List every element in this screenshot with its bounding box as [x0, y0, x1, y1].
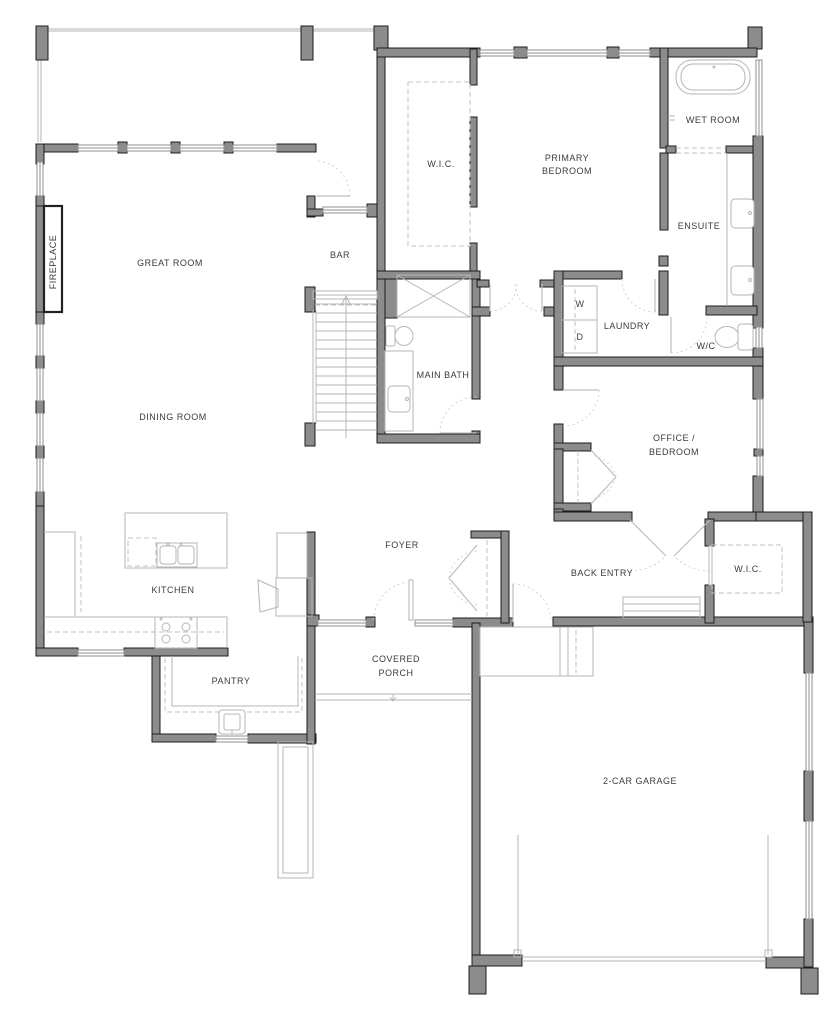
room-label-primary-bedroom-2: BEDROOM [542, 166, 592, 176]
room-label-laundry: LAUNDRY [604, 321, 650, 331]
room-label-wc: W/C [697, 341, 716, 351]
window [216, 736, 248, 742]
window [233, 145, 277, 151]
window [756, 327, 762, 348]
window [37, 162, 43, 196]
door-main-bath [440, 397, 476, 433]
room-label-primary-bedroom-1: PRIMARY [545, 153, 589, 163]
window [415, 620, 453, 626]
window [757, 456, 763, 476]
doors [315, 161, 710, 622]
main-bath-vanity [385, 351, 413, 431]
shower-head-icon [668, 116, 675, 120]
room-label-porch-1: COVERED [372, 654, 420, 664]
room-label-kitchen: KITCHEN [151, 585, 194, 595]
window [180, 145, 224, 151]
room-label-office-1: OFFICE / [653, 433, 695, 443]
refrigerator-icon [258, 533, 312, 616]
room-label-back-wic: W.I.C. [734, 564, 762, 574]
room-label-pantry: PANTRY [212, 676, 251, 686]
sink-icon [731, 199, 754, 228]
window [806, 821, 812, 919]
room-label-dining-room: DINING ROOM [139, 412, 207, 422]
room-label-foyer: FOYER [385, 540, 419, 550]
room-label-porch-2: PORCH [378, 668, 413, 678]
walkway [278, 742, 313, 878]
window [756, 60, 762, 136]
column [374, 26, 388, 50]
pantry-sink-icon [219, 710, 245, 734]
column [36, 26, 48, 60]
dryer-label: D [577, 332, 584, 342]
walls [36, 26, 818, 994]
room-label-ensuite: ENSUITE [678, 221, 721, 231]
door-garage-entry [513, 584, 551, 622]
kitchen-counter-left [44, 532, 75, 616]
room-label-office-2: BEDROOM [649, 447, 699, 457]
window [323, 207, 367, 213]
room-label-great-room: GREAT ROOM [137, 258, 203, 268]
door-office [563, 390, 599, 426]
window [527, 50, 607, 56]
room-label-primary-wic: W.I.C. [427, 159, 455, 169]
roof-edge-lines [38, 29, 376, 142]
porch-steps [315, 694, 472, 701]
washer-label: W [576, 299, 585, 309]
bathtub-icon [676, 60, 750, 94]
window [78, 650, 124, 656]
ensuite-vanity [727, 153, 754, 306]
washer-dryer-stack [562, 286, 597, 353]
floor-plan: GREAT ROOM DINING ROOM BAR W.I.C. PRIMAR… [0, 0, 839, 1024]
window [318, 620, 366, 626]
door-great-room-bar [315, 161, 350, 196]
room-label-back-entry: BACK ENTRY [571, 568, 633, 578]
room-label-fireplace: FIREPLACE [48, 235, 58, 290]
floor-plan-canvas: GREAT ROOM DINING ROOM BAR W.I.C. PRIMAR… [0, 0, 839, 1024]
door-laundry [622, 279, 655, 312]
staircase [313, 295, 377, 438]
door-office-closet [591, 450, 616, 504]
sink-icon [731, 266, 754, 295]
window [806, 673, 812, 771]
window [78, 145, 118, 151]
garage-door [514, 835, 772, 961]
windows [37, 50, 812, 919]
double-sink-icon [157, 543, 197, 567]
window [127, 145, 171, 151]
toilet-icon [386, 326, 413, 346]
window [480, 50, 514, 56]
column [301, 26, 313, 60]
kitchen-island [125, 513, 227, 568]
shower-icon [397, 275, 470, 317]
window [37, 413, 43, 446]
dishwasher-icon [128, 538, 156, 566]
window [757, 399, 763, 449]
window [619, 50, 650, 56]
room-label-wet-room: WET ROOM [686, 115, 740, 125]
room-label-bar: BAR [330, 250, 350, 260]
back-entry-step [623, 597, 700, 618]
door-front-entry [374, 580, 413, 620]
window [37, 324, 43, 356]
door-primary-suite-double [490, 284, 542, 311]
toilet-icon [715, 324, 753, 350]
room-label-main-bath: MAIN BATH [417, 370, 470, 380]
window [37, 368, 43, 401]
door-foyer-closet [449, 545, 477, 611]
door-back-entry-french [630, 520, 710, 571]
back-wic-opening [709, 546, 712, 585]
column [748, 27, 762, 49]
window [37, 458, 43, 492]
room-label-garage: 2-CAR GARAGE [603, 776, 677, 786]
